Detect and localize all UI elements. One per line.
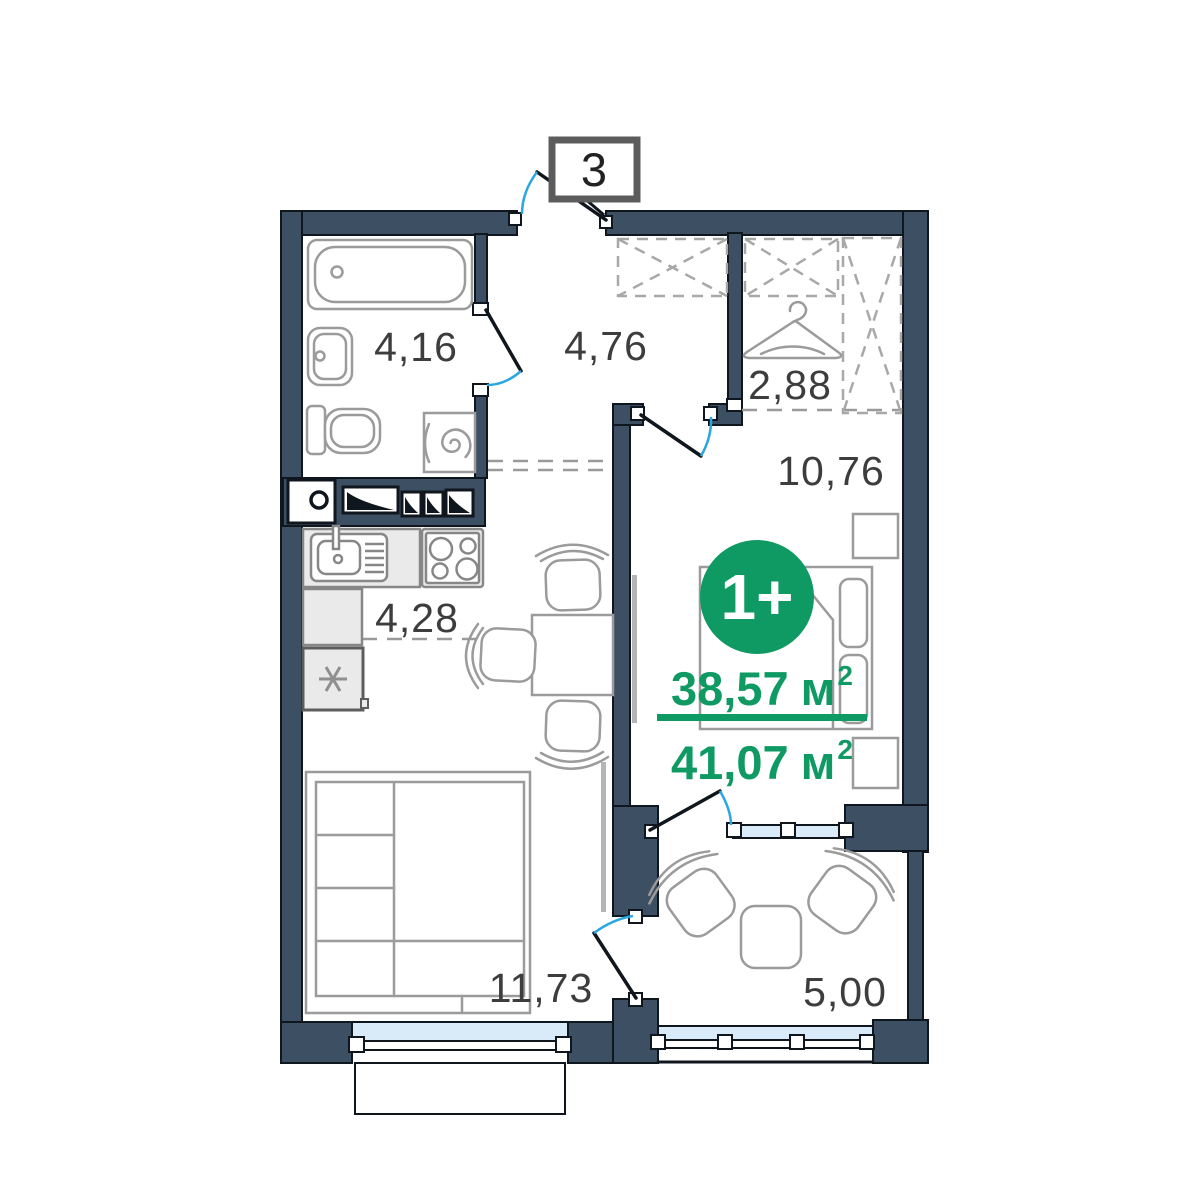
chair xyxy=(536,700,608,769)
bedroom-balcony-window xyxy=(727,823,853,838)
washing-machine-icon xyxy=(424,413,475,472)
fridge-icon xyxy=(303,648,368,710)
entrance-badge: 3 xyxy=(552,140,637,215)
room-area-label-closet: 2,88 xyxy=(748,362,832,408)
wall-console xyxy=(632,575,637,723)
area-main-label: 38,57м2 xyxy=(671,660,853,715)
area-divider-line xyxy=(657,714,867,721)
kitchen-cabinet xyxy=(303,589,362,645)
bathroom-door xyxy=(486,310,521,385)
balcony-furniture xyxy=(639,837,904,968)
chair xyxy=(466,624,536,688)
door-swing-icon xyxy=(720,791,731,825)
room-area-label-bathroom: 4,16 xyxy=(374,324,458,370)
entrance-number-label: 3 xyxy=(581,143,607,196)
living-room-window xyxy=(349,1022,571,1114)
vent-shaft-icon xyxy=(343,487,398,513)
tv-console xyxy=(601,762,606,912)
dining-set xyxy=(466,545,613,769)
area-superscript: 2 xyxy=(837,734,853,765)
door-swing-icon xyxy=(487,371,521,385)
vent-shaft-icon xyxy=(424,492,443,516)
floor-plan-page: 3 xyxy=(0,0,1200,1200)
apartment-type-badge: 1+ xyxy=(700,540,814,654)
bedroom-door xyxy=(641,415,711,456)
door-swing-icon xyxy=(522,172,537,214)
area-main-value: 38,57 xyxy=(671,662,789,715)
room-area-label-bedroom: 10,76 xyxy=(777,448,885,494)
living-balcony-door xyxy=(594,916,636,998)
area-unit: м xyxy=(801,736,836,789)
vent-shaft-icon xyxy=(402,492,421,516)
room-area-label-kitchen: 4,28 xyxy=(375,595,459,641)
wardrobe-icon xyxy=(745,239,838,296)
door-swing-icon xyxy=(594,916,633,933)
kitchen-sink-icon xyxy=(311,526,387,581)
floor-plan: 3 xyxy=(0,0,1200,1200)
balcony-window xyxy=(651,1026,874,1062)
bathroom-sink-icon xyxy=(308,328,352,385)
room-area-label-balcony: 5,00 xyxy=(803,969,887,1015)
bathtub-icon xyxy=(308,240,472,309)
area-unit: м xyxy=(801,662,836,715)
stove-icon xyxy=(422,529,483,587)
vent-shaft-icon xyxy=(446,490,473,516)
window-ledge xyxy=(355,1063,565,1114)
toilet-icon xyxy=(307,406,380,454)
bedroom-balcony-door xyxy=(650,791,731,830)
nightstand xyxy=(853,514,898,558)
balcony-table xyxy=(741,906,801,968)
armchair xyxy=(792,837,904,947)
room-area-label-living: 11,73 xyxy=(489,965,594,1011)
area-superscript: 2 xyxy=(837,660,853,691)
room-area-label-hallway: 4,76 xyxy=(564,323,648,369)
nightstand xyxy=(853,738,898,788)
vent-pipe-icon xyxy=(311,492,327,508)
area-total-value: 41,07 xyxy=(671,736,789,789)
area-total-label: 41,07м2 xyxy=(671,734,853,789)
dining-table xyxy=(532,615,613,695)
chair xyxy=(536,545,608,611)
wardrobe-icon xyxy=(843,238,901,413)
wardrobe-icon xyxy=(618,239,727,296)
hanger-icon xyxy=(744,302,841,358)
apartment-type-label: 1+ xyxy=(721,561,794,633)
pillow xyxy=(840,579,867,647)
